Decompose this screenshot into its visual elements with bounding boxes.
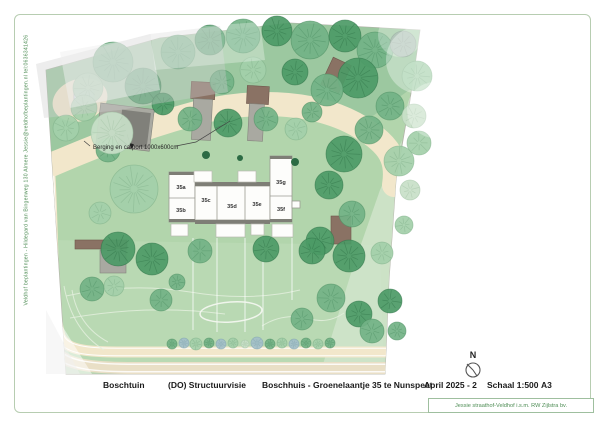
tree xyxy=(262,16,292,46)
unit-label-35a: 35a xyxy=(176,185,186,191)
tree xyxy=(395,216,413,234)
tree xyxy=(371,242,393,264)
tree xyxy=(378,289,402,313)
titleblock-project: Boschtuin xyxy=(103,380,145,390)
credit-text: Jessie straathof-Veldhof i.s.m. RW Zijls… xyxy=(455,403,567,409)
tree xyxy=(360,319,384,343)
titleblock-scale: Schaal 1:500 xyxy=(487,380,539,390)
tree xyxy=(110,165,158,213)
tree xyxy=(136,243,168,275)
north-arrow: N xyxy=(466,350,480,377)
tree xyxy=(302,102,322,122)
studio-contact-text: Veldhof beplantingen - Hildegard van Bin… xyxy=(24,21,30,306)
site-plan-drawing: TH 35a35b35c35d35e35f35g xyxy=(0,0,600,424)
tree xyxy=(89,202,111,224)
tree xyxy=(214,109,242,137)
conifer-tree xyxy=(237,155,243,161)
tree xyxy=(313,339,323,349)
tree xyxy=(53,115,79,141)
tree xyxy=(216,339,226,349)
tree xyxy=(325,338,335,348)
tree xyxy=(80,277,104,301)
tree xyxy=(179,338,189,348)
unit-label-35f: 35f xyxy=(277,207,285,213)
tree xyxy=(388,322,406,340)
tree xyxy=(400,180,420,200)
tree xyxy=(285,118,307,140)
unit-label-35d: 35d xyxy=(227,204,237,210)
tree xyxy=(339,201,365,227)
tree xyxy=(333,240,365,272)
north-label: N xyxy=(470,350,477,360)
unit-label-35g: 35g xyxy=(276,180,286,186)
conifer-tree xyxy=(291,158,299,166)
tree xyxy=(317,284,345,312)
tree xyxy=(204,338,214,348)
tree xyxy=(228,338,238,348)
unit-label-35b: 35b xyxy=(176,208,186,214)
unit-label-35c: 35c xyxy=(201,198,210,204)
tree xyxy=(241,340,249,348)
tree xyxy=(188,239,212,263)
tree xyxy=(355,116,383,144)
tree xyxy=(329,20,361,52)
tree xyxy=(326,136,362,172)
tree xyxy=(291,308,313,330)
tree xyxy=(104,276,124,296)
tree xyxy=(254,107,278,131)
tree xyxy=(167,339,177,349)
tree xyxy=(289,339,299,349)
tree xyxy=(190,338,202,350)
tree xyxy=(178,107,202,131)
conifer-tree xyxy=(202,151,210,159)
berging-label: Berging en carport 1000x600cm xyxy=(93,145,178,151)
tree xyxy=(376,92,404,120)
tree xyxy=(251,337,263,349)
tree xyxy=(338,58,378,98)
tree xyxy=(291,21,329,59)
tree xyxy=(301,338,311,348)
titleblock-date: April 2025 - 2 xyxy=(424,380,477,390)
titleblock-phase: (DO) Structuurvisie xyxy=(168,380,246,390)
site-plan-page: TH 35a35b35c35d35e35f35g xyxy=(0,0,600,424)
tree xyxy=(169,274,185,290)
credit-box: Jessie straathof-Veldhof i.s.m. RW Zijls… xyxy=(428,398,594,413)
tree xyxy=(282,59,308,85)
titleblock-paper-size: A3 xyxy=(541,380,552,390)
unit-label-35e: 35e xyxy=(252,202,261,208)
tree xyxy=(315,171,343,199)
tree xyxy=(253,236,279,262)
tree xyxy=(150,289,172,311)
tree xyxy=(265,339,275,349)
titleblock-subject: Boschhuis - Groenelaantje 35 te Nunspeet xyxy=(262,380,433,390)
tree xyxy=(299,238,325,264)
canopy-highlight xyxy=(407,82,463,138)
tree xyxy=(277,338,287,348)
tree xyxy=(101,232,135,266)
tree xyxy=(384,146,414,176)
tree xyxy=(311,74,343,106)
canopy-highlight xyxy=(378,13,422,57)
